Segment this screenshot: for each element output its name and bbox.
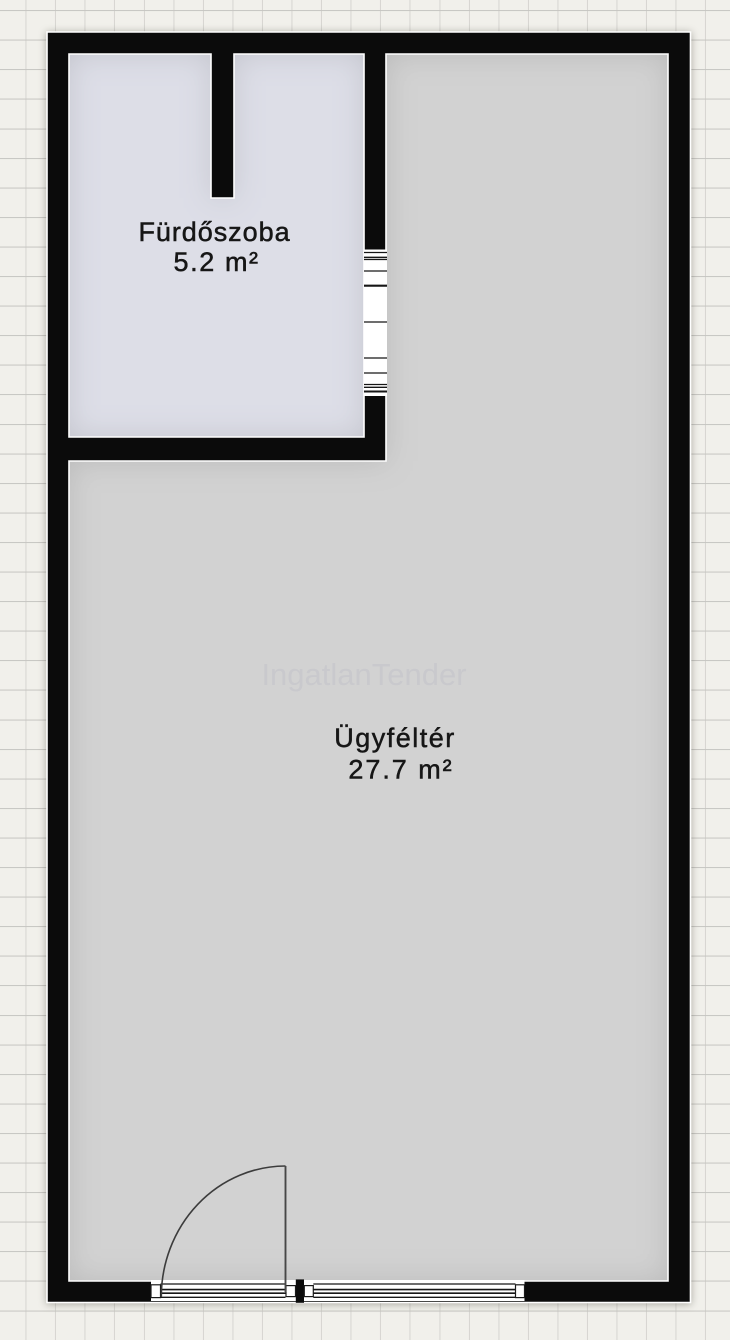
svg-text:Fürdőszoba: Fürdőszoba (138, 217, 290, 247)
svg-text:Ügyféltér: Ügyféltér (334, 723, 456, 753)
svg-text:IngatlanTender: IngatlanTender (261, 657, 466, 692)
svg-text:27.7 m²: 27.7 m² (348, 755, 453, 785)
svg-text:5.2 m²: 5.2 m² (174, 247, 260, 277)
